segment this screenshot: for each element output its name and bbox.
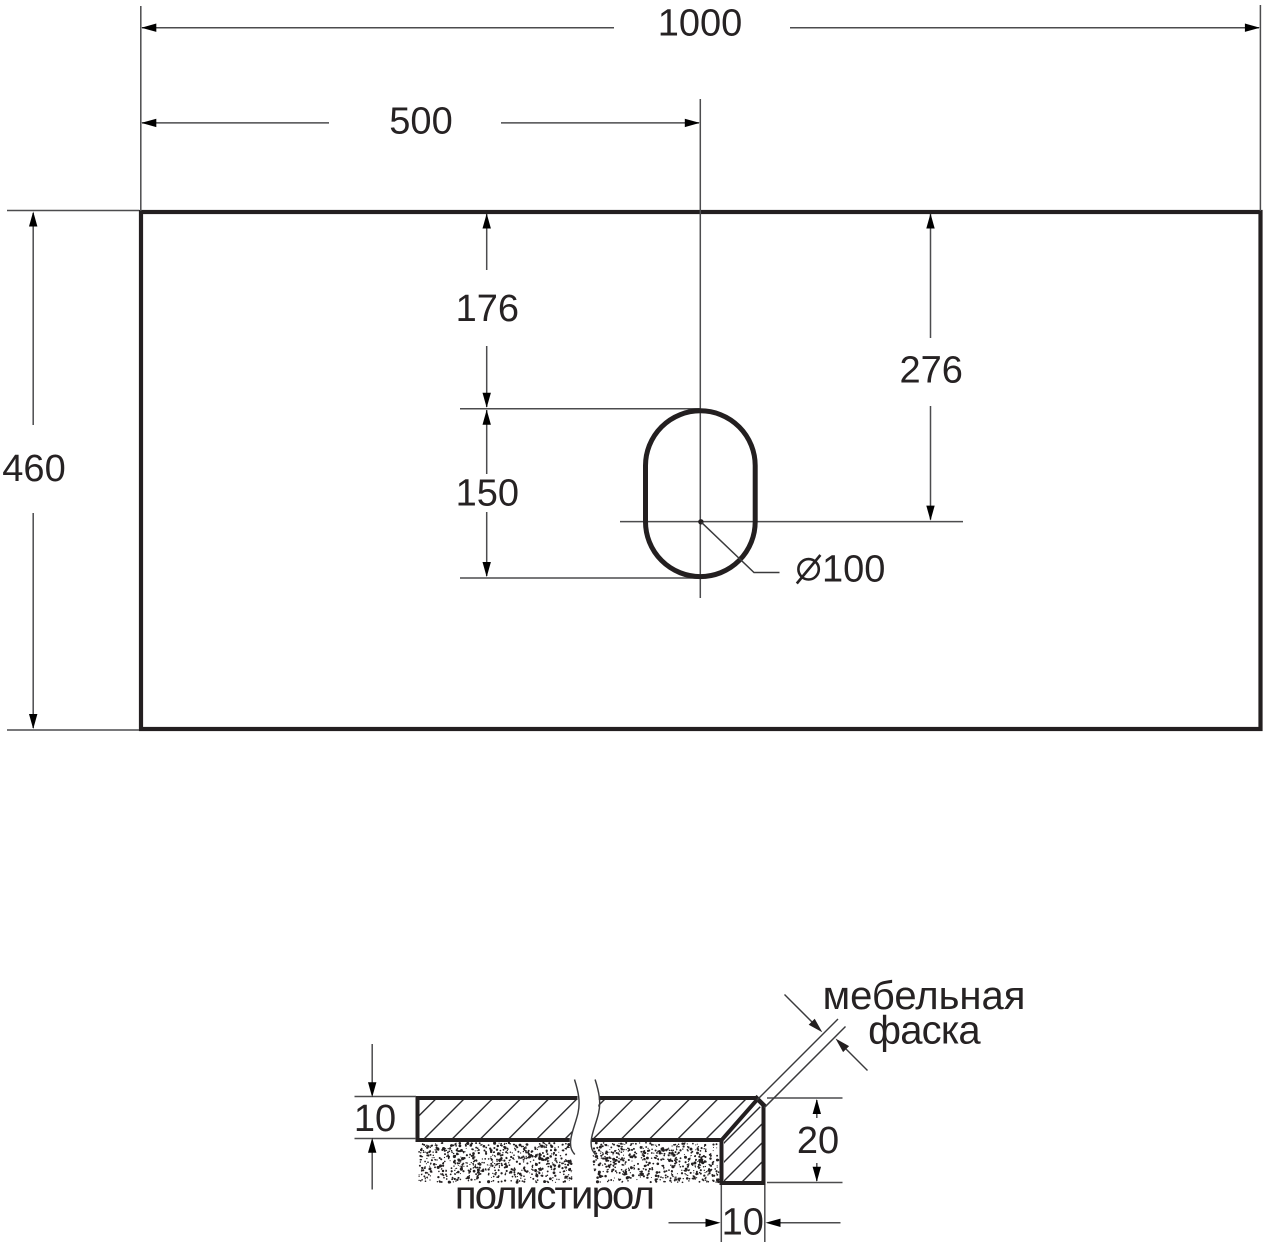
svg-text:10: 10: [354, 1098, 396, 1140]
svg-text:1000: 1000: [658, 3, 743, 45]
svg-text:полистирол: полистирол: [455, 1174, 653, 1218]
svg-text:176: 176: [456, 288, 519, 330]
svg-text:10: 10: [722, 1201, 764, 1243]
svg-text:150: 150: [456, 473, 519, 515]
svg-text:276: 276: [899, 350, 962, 392]
svg-text:500: 500: [389, 100, 452, 142]
svg-text:460: 460: [2, 448, 65, 490]
svg-text:20: 20: [797, 1120, 839, 1162]
svg-text:100: 100: [822, 549, 885, 591]
svg-text:фаска: фаска: [868, 1009, 981, 1053]
